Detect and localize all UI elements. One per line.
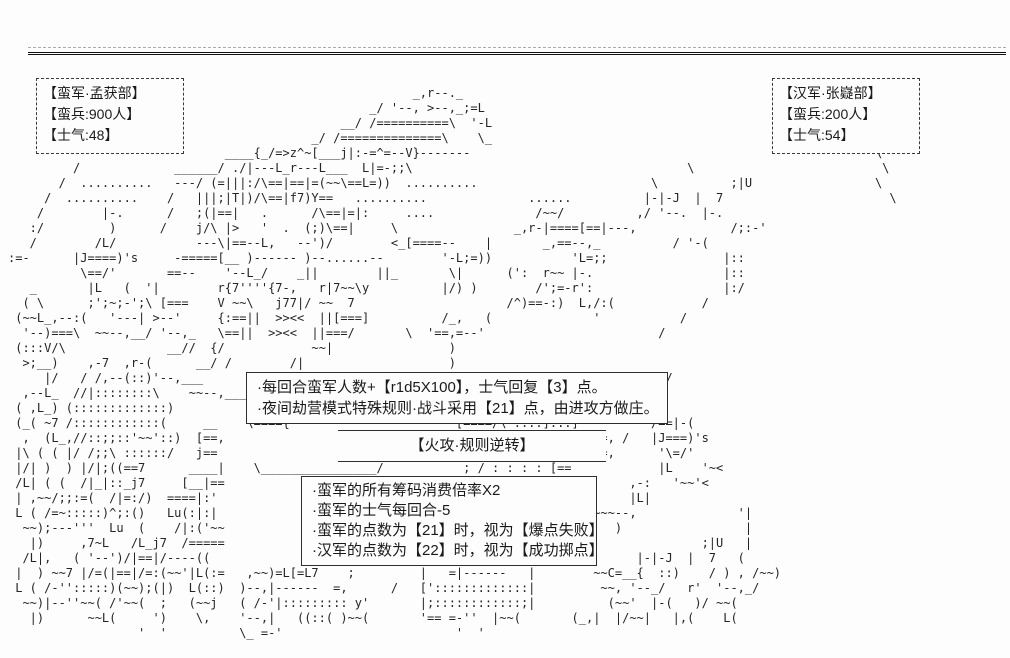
header-divider	[28, 47, 1006, 55]
army-right-name: 【汉军·张嶷部】	[779, 83, 913, 104]
aa-game-screen: _,r--._ _/ '--, >--,_;=L __/ /==========…	[0, 0, 1010, 658]
fire-attack-rule-banner: 【火攻·规则逆转】	[338, 430, 606, 462]
army-stats-left: 【蛮军·孟获部】 【蛮兵:900人】 【士气:48】	[36, 78, 184, 154]
turn-rule-line-2: ·夜间劫营模式特殊规则·战斗采用【21】点，由进攻方做庄。	[257, 398, 657, 419]
reversal-rule-line-2: ·蛮军的士气每回合-5	[312, 501, 586, 521]
army-left-name: 【蛮军·孟获部】	[43, 83, 177, 104]
army-stats-right: 【汉军·张嶷部】 【蛮兵:200人】 【士气:54】	[772, 78, 920, 154]
reversal-rule-line-4: ·汉军的点数为【22】时，视为【成功掷点】	[312, 541, 586, 561]
army-right-troops: 【蛮兵:200人】	[779, 104, 913, 125]
reversal-rule-line-3: ·蛮军的点数为【21】时，视为【爆点失败】	[312, 521, 586, 541]
army-left-morale: 【士气:48】	[43, 125, 177, 146]
turn-rule-line-1: ·每回合蛮军人数+【r1d5X100】，士气回复【3】点。	[257, 377, 657, 398]
army-left-troops: 【蛮兵:900人】	[43, 104, 177, 125]
army-right-morale: 【士气:54】	[779, 125, 913, 146]
reversal-rules-box: ·蛮军的所有筹码消费倍率X2 ·蛮军的士气每回合-5 ·蛮军的点数为【21】时，…	[301, 476, 597, 566]
turn-rules-box: ·每回合蛮军人数+【r1d5X100】，士气回复【3】点。 ·夜间劫营模式特殊规…	[246, 372, 668, 424]
reversal-rule-line-1: ·蛮军的所有筹码消费倍率X2	[312, 481, 586, 501]
